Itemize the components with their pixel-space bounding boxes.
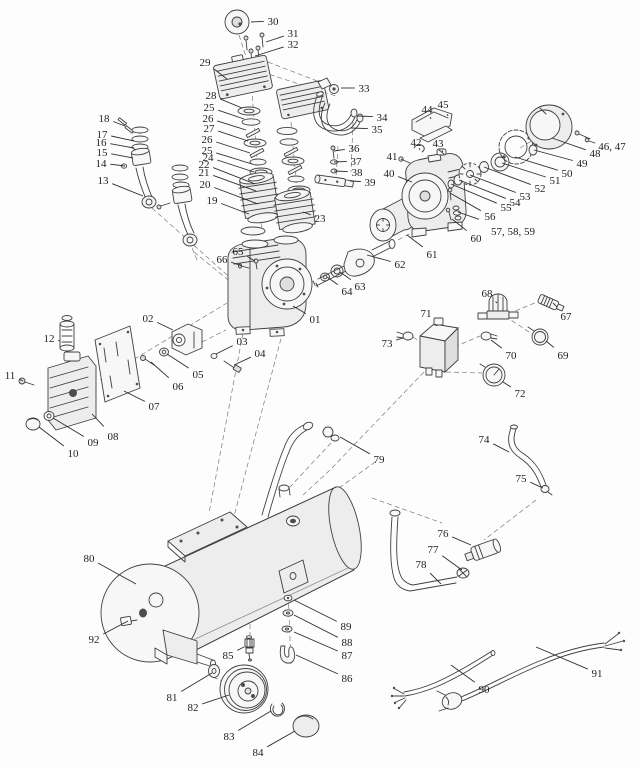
part-label-92: 92 (89, 634, 100, 646)
leader-line-81 (181, 673, 212, 692)
bolt-06 (141, 356, 155, 366)
part-label-52: 52 (535, 183, 546, 195)
part-label-70: 70 (506, 350, 518, 362)
part-label-90: 90 (479, 684, 491, 696)
muffler-bolt-11 (19, 378, 34, 385)
leader-line-37 (334, 161, 347, 162)
part-label-12: 12 (44, 333, 55, 345)
leader-line-30 (251, 21, 264, 22)
part-label-60: 60 (471, 233, 483, 245)
part-label-04: 04 (255, 348, 267, 360)
leader-line-83 (238, 711, 271, 731)
part-label-35: 35 (372, 124, 384, 136)
part-label-43: 43 (433, 138, 445, 150)
part-label-65: 65 (233, 246, 245, 258)
valve-stack-rear (277, 127, 310, 194)
pressure-switch (420, 318, 458, 377)
part-label-81: 81 (167, 692, 178, 704)
part-label-13: 13 (98, 175, 110, 187)
part-label-05: 05 (193, 369, 205, 381)
leader-line-39 (350, 181, 361, 182)
part-label-48: 48 (590, 148, 602, 160)
part-label-19: 19 (207, 195, 219, 207)
leader-line-51 (502, 163, 546, 177)
leader-line-02 (157, 322, 173, 330)
part-label-08: 08 (108, 431, 120, 443)
quick-coupler-67 (537, 294, 564, 313)
part-label-34: 34 (377, 112, 389, 124)
leader-line-13 (112, 184, 143, 196)
leader-line-53 (470, 175, 516, 193)
part-label-38: 38 (352, 167, 364, 179)
leader-line-75 (530, 482, 543, 488)
part-label-40: 40 (384, 168, 396, 180)
part-label-21: 21 (199, 167, 210, 179)
leader-line-70 (491, 340, 502, 348)
part-label-72: 72 (515, 388, 526, 400)
part-label-36: 36 (349, 143, 361, 155)
part-label-61: 61 (427, 249, 438, 261)
leader-line-06 (151, 362, 169, 378)
part-label-57-58-59: 57, 58, 59 (491, 226, 536, 238)
part-label-09: 09 (88, 437, 100, 449)
leader-line-27 (218, 131, 248, 141)
gauge-69 (528, 327, 548, 345)
leader-line-16 (110, 144, 134, 148)
part-label-44: 44 (422, 104, 434, 116)
leader-line-79 (340, 437, 370, 454)
part-label-33: 33 (359, 83, 371, 95)
part-label-32: 32 (288, 39, 299, 51)
part-label-66: 66 (217, 254, 229, 266)
fitting-79 (323, 427, 339, 441)
leader-line-17 (111, 136, 134, 141)
part-label-18: 18 (99, 113, 111, 125)
part-label-45: 45 (438, 99, 450, 111)
part-label-68: 68 (482, 288, 494, 300)
part-label-01: 01 (310, 314, 321, 326)
leader-line-05 (167, 354, 189, 368)
motor-bolt-41 (399, 157, 410, 163)
washer-09 (44, 412, 54, 421)
part-label-14: 14 (96, 158, 108, 170)
air-filter-knob (225, 10, 249, 34)
part-label-85: 85 (223, 650, 235, 662)
part-label-42: 42 (411, 137, 422, 149)
part-label-80: 80 (84, 553, 96, 565)
part-label-67: 67 (561, 311, 573, 323)
valve-stack-front (238, 107, 272, 176)
part-label-79: 79 (374, 454, 386, 466)
gasket-plate-07 (95, 326, 140, 402)
diagram-artwork: 3031322933343528252627262524222120191817… (0, 0, 640, 768)
gauge-72 (480, 364, 505, 386)
discharge-pipe-with-check-valve (390, 510, 502, 591)
hub-cap-84 (293, 715, 319, 737)
part-label-06: 06 (173, 381, 185, 393)
leader-line-69 (546, 341, 554, 347)
part-label-03: 03 (237, 336, 249, 348)
leader-line-54 (459, 180, 506, 198)
part-label-91: 91 (592, 668, 603, 680)
part-label-39: 39 (365, 177, 377, 189)
leader-line-15 (111, 154, 133, 158)
part-label-75: 75 (516, 473, 528, 485)
leader-line-86 (296, 655, 338, 674)
part-label-46-47: 46, 47 (598, 141, 626, 153)
part-label-78: 78 (416, 559, 428, 571)
part-label-50: 50 (562, 168, 574, 180)
part-label-20: 20 (200, 179, 212, 191)
air-tank (101, 484, 367, 662)
part-label-77: 77 (428, 544, 440, 556)
motor-fan-and-stator (448, 130, 537, 188)
leader-line-25 (216, 153, 252, 164)
part-label-07: 07 (149, 401, 161, 413)
cap-10 (26, 418, 40, 430)
part-label-69: 69 (558, 350, 570, 362)
part-label-86: 86 (342, 673, 354, 685)
part-label-28: 28 (206, 90, 218, 102)
fitting-70 (481, 332, 497, 340)
part-label-41: 41 (387, 151, 398, 163)
part-label-23: 23 (315, 213, 327, 225)
washer-05 (160, 348, 169, 356)
motor-housing (402, 154, 466, 237)
leader-line-38 (334, 171, 348, 172)
leader-line-49 (534, 150, 573, 161)
leader-line-24 (217, 160, 254, 172)
part-label-49: 49 (577, 158, 589, 170)
leader-line-35 (351, 128, 368, 129)
leader-line-76 (452, 537, 471, 545)
leader-line-07 (124, 391, 145, 401)
piston-set-front (118, 118, 156, 208)
part-label-53: 53 (520, 191, 532, 203)
part-label-29: 29 (200, 57, 212, 69)
cylinder-rear (272, 187, 318, 235)
part-label-30: 30 (268, 16, 280, 28)
part-label-83: 83 (224, 731, 236, 743)
leader-line-08 (92, 414, 104, 426)
part-label-51: 51 (550, 175, 561, 187)
part-label-82: 82 (188, 702, 199, 714)
leader-line-72 (503, 382, 511, 387)
leader-line-50 (515, 157, 558, 170)
leader-line-77 (442, 556, 462, 570)
leader-line-85 (237, 647, 244, 650)
leader-line-78 (430, 573, 441, 584)
part-label-55: 55 (501, 202, 513, 214)
part-label-76: 76 (438, 528, 450, 540)
muffler-block (48, 352, 96, 430)
leader-line-91 (536, 647, 588, 669)
leader-line-28 (220, 99, 242, 108)
part-label-71: 71 (421, 308, 432, 320)
leader-line-03 (216, 346, 233, 354)
leader-line-34 (357, 116, 373, 117)
piston-set-rear (157, 165, 198, 262)
part-label-87: 87 (342, 650, 354, 662)
part-label-02: 02 (143, 313, 154, 325)
leader-line-31 (266, 36, 284, 42)
part-label-56: 56 (485, 211, 497, 223)
part-label-73: 73 (382, 338, 394, 350)
leader-line-04 (234, 357, 251, 365)
axle-washer-81 (209, 665, 220, 678)
leader-line-87 (294, 632, 338, 651)
leader-line-84 (267, 731, 295, 747)
part-label-74: 74 (479, 434, 491, 446)
part-label-88: 88 (342, 637, 354, 649)
part-label-10: 10 (68, 448, 80, 460)
leader-line-74 (493, 444, 509, 452)
part-label-63: 63 (355, 281, 367, 293)
leader-line-10 (39, 427, 64, 446)
exploded-parts-diagram: 3031322933343528252627262524222120191817… (0, 0, 640, 768)
unloader-valve-02 (172, 324, 202, 355)
part-label-64: 64 (342, 286, 354, 298)
wheel (220, 665, 268, 713)
cylinder-base-gasket (241, 227, 265, 235)
part-label-11: 11 (5, 370, 16, 382)
snap-ring-83 (270, 703, 284, 716)
part-label-84: 84 (253, 747, 265, 759)
drain-valve-85 (245, 636, 254, 661)
leader-line-12 (58, 341, 60, 342)
leader-line-36 (334, 149, 345, 151)
leader-line-73 (396, 338, 403, 340)
part-label-89: 89 (341, 621, 353, 633)
part-label-62: 62 (395, 259, 406, 271)
